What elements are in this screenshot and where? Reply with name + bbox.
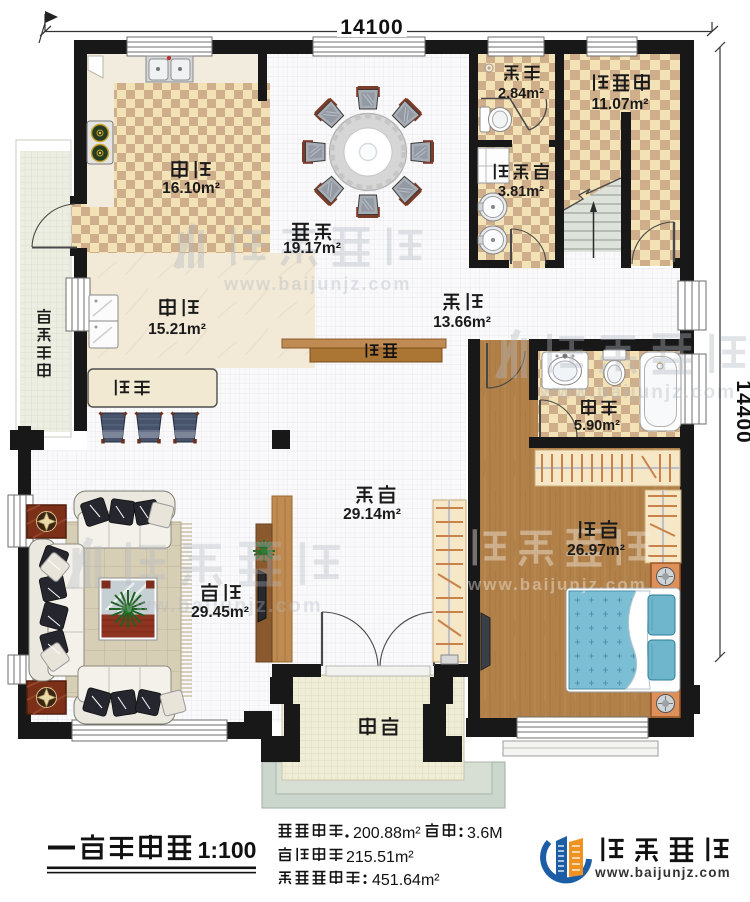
svg-text:16.10m²: 16.10m² [162, 180, 220, 197]
svg-text:19.17m²: 19.17m² [283, 240, 341, 257]
svg-text:215.51m²: 215.51m² [346, 849, 414, 866]
svg-text:www.baijunjz.com: www.baijunjz.com [594, 865, 731, 880]
svg-text:11.07m²: 11.07m² [592, 96, 649, 113]
svg-text:26.97m²: 26.97m² [567, 542, 625, 559]
svg-text:www.baijunjz.com: www.baijunjz.com [467, 575, 647, 594]
svg-text:14100: 14100 [340, 16, 403, 39]
svg-text:29.45m²: 29.45m² [191, 604, 249, 621]
svg-text:13.66m²: 13.66m² [433, 314, 491, 331]
svg-text:29.14m²: 29.14m² [343, 506, 401, 523]
svg-text:5.90m²: 5.90m² [574, 418, 620, 434]
svg-text:451.64m²: 451.64m² [372, 872, 440, 889]
svg-text:3.81m²: 3.81m² [498, 184, 544, 200]
svg-text:2.84m²: 2.84m² [498, 86, 544, 102]
svg-text:1:100: 1:100 [198, 837, 257, 863]
svg-text:200.88m²: 200.88m² [353, 825, 421, 842]
svg-text:3.6M: 3.6M [467, 825, 503, 842]
svg-text:15.21m²: 15.21m² [148, 321, 206, 338]
svg-text:www.baijunjz.com: www.baijunjz.com [539, 382, 736, 403]
svg-text:www.baijunjz.com: www.baijunjz.com [223, 274, 411, 294]
svg-text:14400: 14400 [732, 380, 750, 443]
